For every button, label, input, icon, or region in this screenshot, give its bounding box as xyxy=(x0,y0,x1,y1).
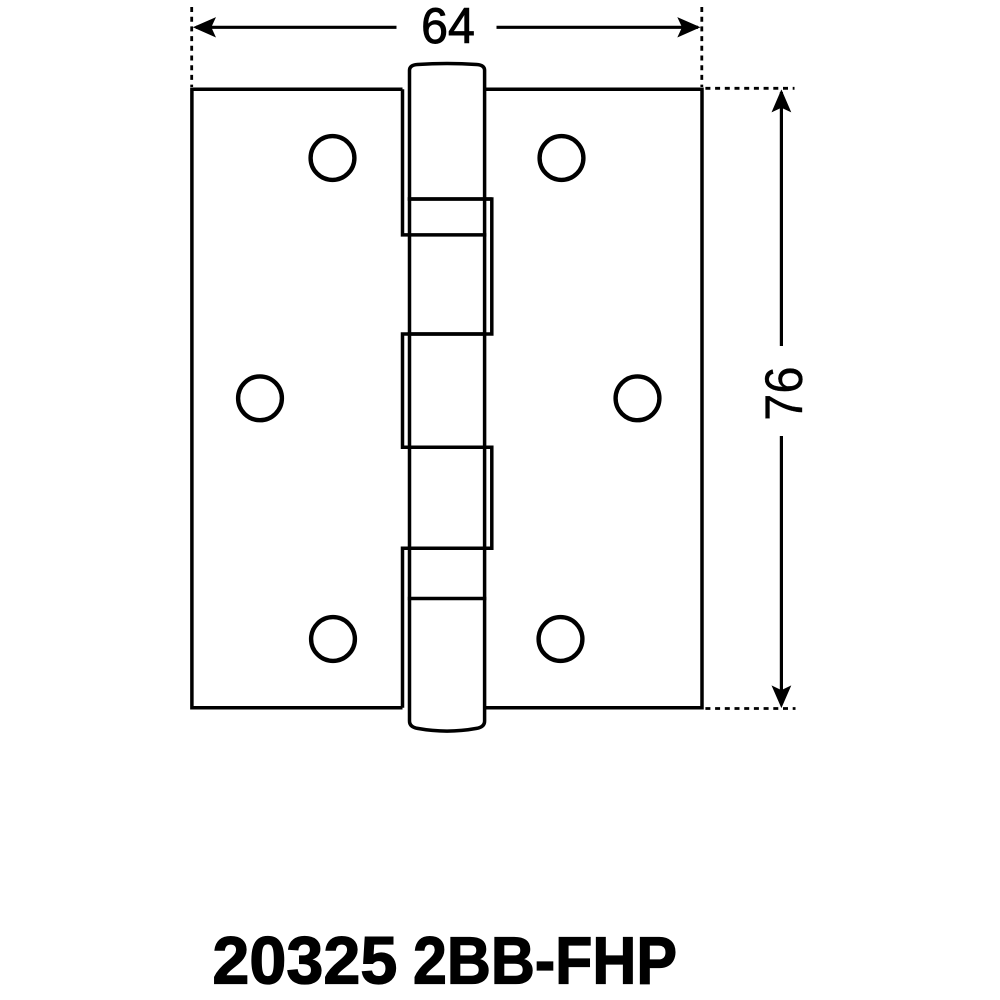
svg-text:76: 76 xyxy=(755,366,814,421)
svg-text:64: 64 xyxy=(421,0,475,54)
svg-text:2BB-FHP: 2BB-FHP xyxy=(413,925,677,999)
svg-text:20325: 20325 xyxy=(212,925,397,999)
